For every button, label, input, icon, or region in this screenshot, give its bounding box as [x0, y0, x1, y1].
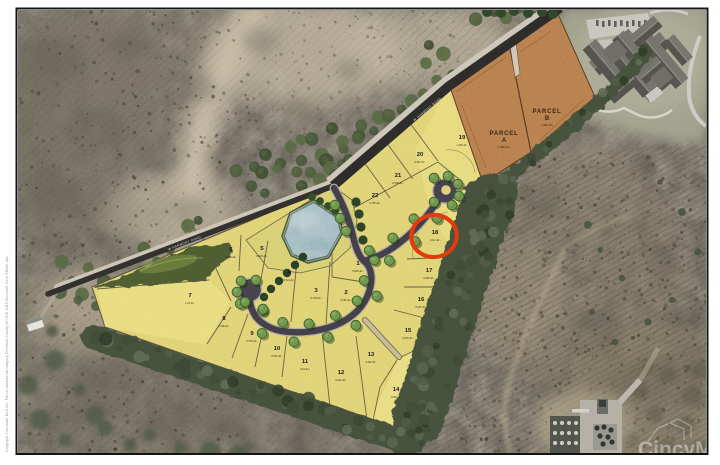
svg-text:14: 14 — [393, 387, 400, 393]
svg-text:0.582 AC.: 0.582 AC. — [365, 361, 377, 364]
svg-text:12: 12 — [338, 370, 345, 376]
svg-text:B: B — [545, 116, 550, 122]
svg-text:PARCEL: PARCEL — [489, 131, 518, 137]
svg-text:0.800 AC.: 0.800 AC. — [423, 277, 435, 280]
svg-text:1.380 AC.: 1.380 AC. — [497, 145, 510, 149]
svg-text:1.509 AC.: 1.509 AC. — [456, 144, 468, 147]
svg-text:11: 11 — [302, 359, 309, 365]
svg-text:A: A — [502, 138, 507, 144]
svg-text:15: 15 — [405, 328, 412, 334]
svg-text:PARCEL: PARCEL — [532, 109, 561, 115]
svg-text:0.660 AC.: 0.660 AC. — [352, 270, 364, 273]
svg-text:0.700 AC.: 0.700 AC. — [369, 202, 381, 205]
svg-text:21: 21 — [395, 173, 402, 179]
svg-text:17: 17 — [426, 268, 433, 274]
svg-text:0.582 AC.: 0.582 AC. — [340, 299, 352, 302]
svg-text:1.041 AC.: 1.041 AC. — [429, 239, 441, 242]
svg-text:0.578 AC.: 0.578 AC. — [310, 297, 322, 300]
svg-text:0.509 AC.: 0.509 AC. — [392, 182, 404, 185]
svg-text:20: 20 — [417, 152, 424, 158]
svg-text:0.508 AC.: 0.508 AC. — [218, 325, 230, 328]
svg-text:22: 22 — [372, 193, 379, 199]
svg-text:0.623 AC.: 0.623 AC. — [256, 255, 268, 258]
svg-text:19: 19 — [459, 135, 466, 141]
svg-text:0.636 AC.: 0.636 AC. — [402, 337, 414, 340]
svg-text:1.056 AC.: 1.056 AC. — [390, 396, 402, 399]
svg-text:13: 13 — [368, 352, 375, 358]
svg-text:16: 16 — [418, 297, 425, 303]
svg-text:10: 10 — [274, 346, 281, 352]
svg-text:1.65 AC.: 1.65 AC. — [185, 302, 195, 305]
svg-text:0.64 AC.: 0.64 AC. — [300, 368, 310, 371]
svg-text:18: 18 — [432, 230, 439, 236]
svg-text:0.692 AC.: 0.692 AC. — [335, 379, 347, 382]
svg-text:0.505 AC.: 0.505 AC. — [246, 340, 258, 343]
svg-text:1.466 AC.: 1.466 AC. — [540, 123, 553, 127]
svg-text:0.505 AC.: 0.505 AC. — [271, 355, 283, 358]
svg-text:0.605 AC.: 0.605 AC. — [415, 306, 427, 309]
svg-text:Copyright Cincinnati MLS Inc.: Copyright Cincinnati MLS Inc. Parcel dat… — [5, 256, 9, 452]
svg-text:0.506 AC.: 0.506 AC. — [225, 256, 237, 259]
svg-text:0.524 AC.: 0.524 AC. — [283, 279, 295, 282]
svg-text:0.567 AC.: 0.567 AC. — [414, 161, 426, 164]
